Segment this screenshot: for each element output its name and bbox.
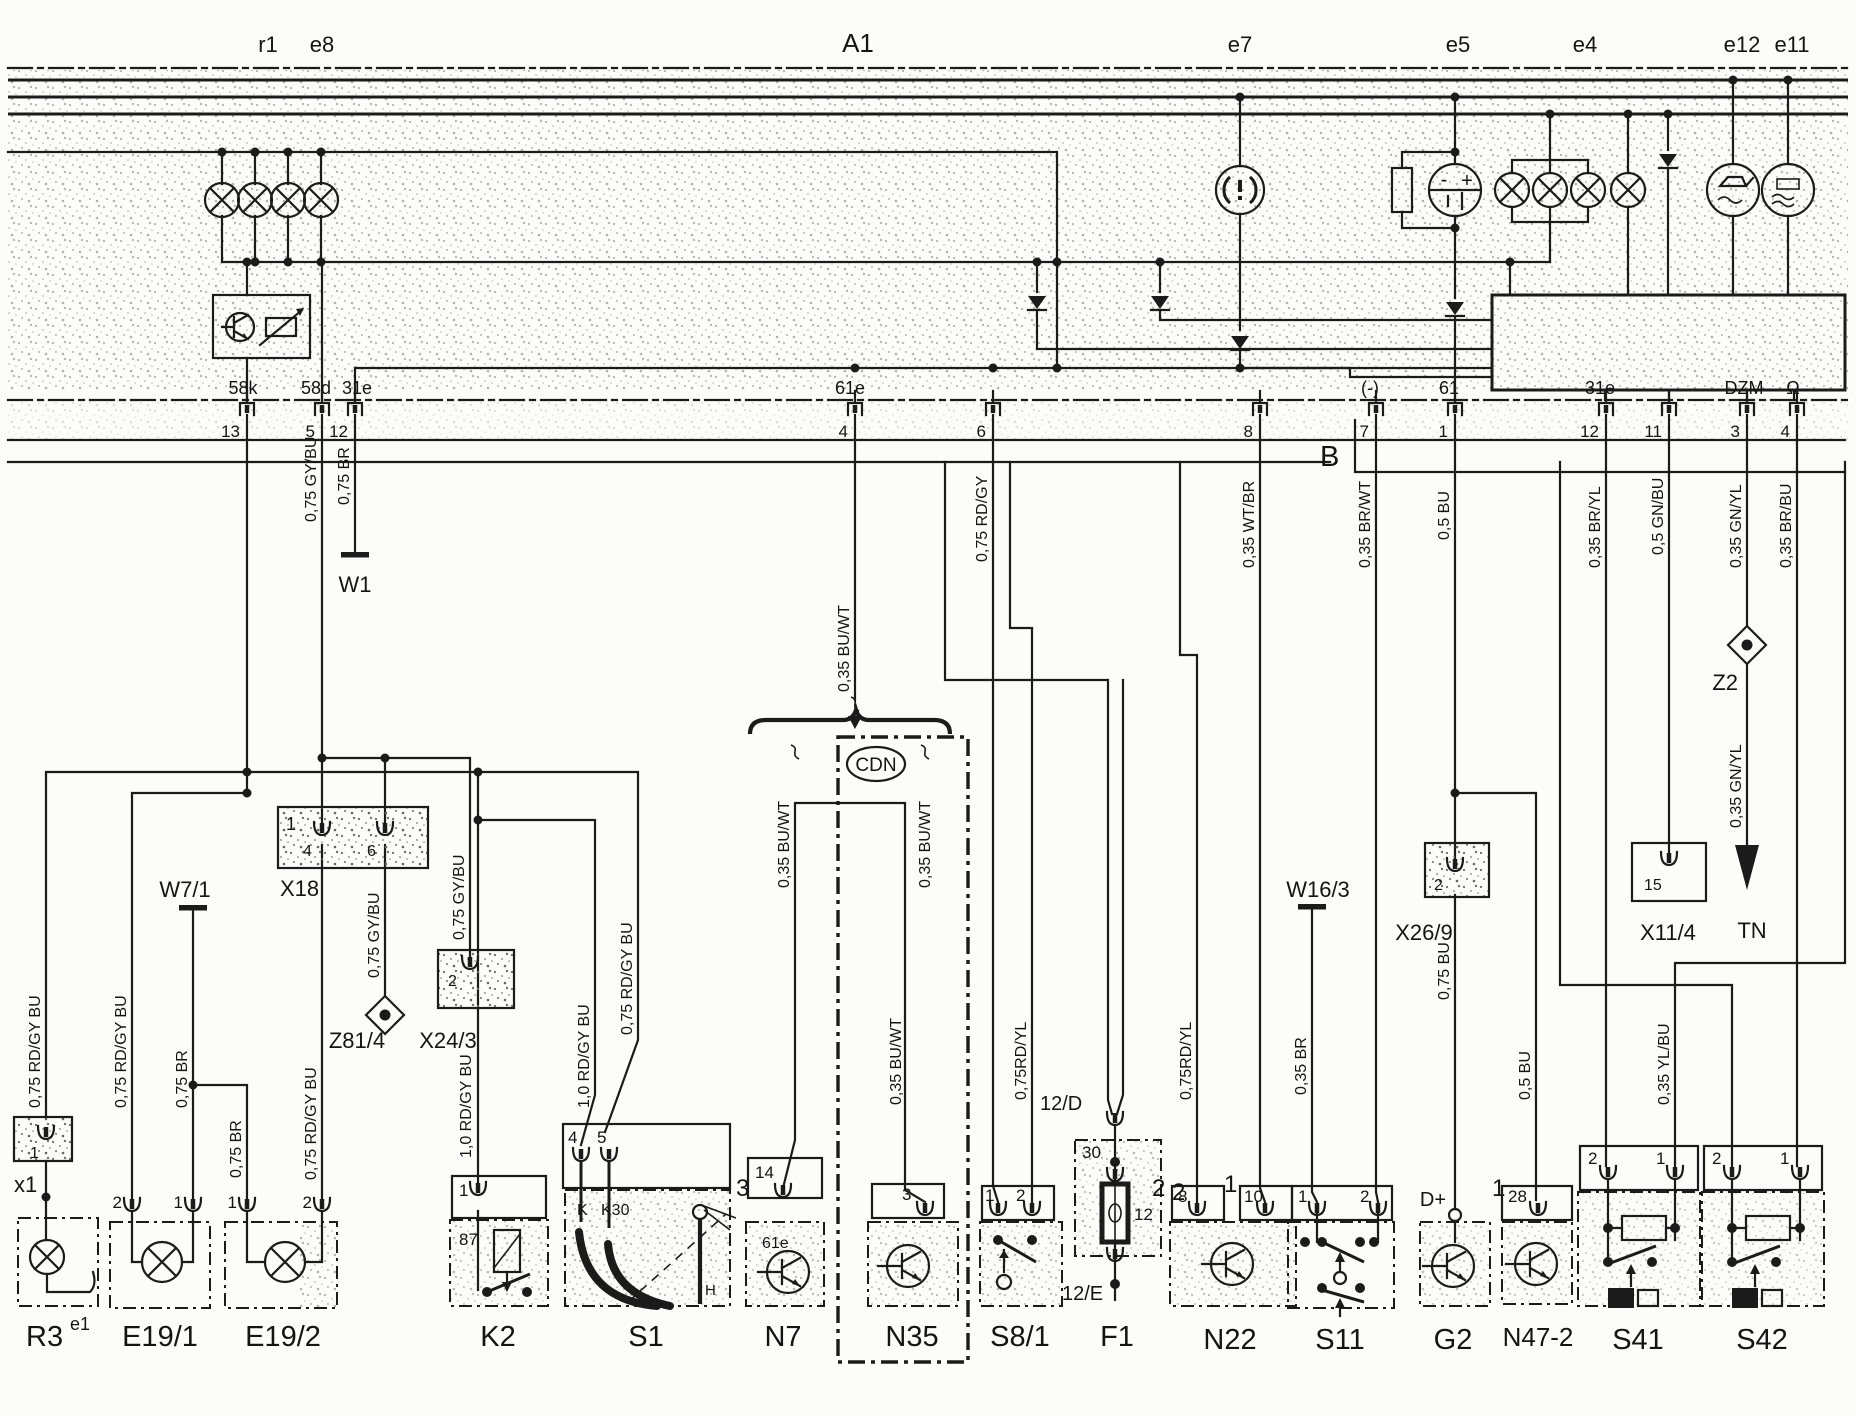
x1-pin1: 1 <box>30 1145 39 1162</box>
twisted-pair-brace <box>750 710 950 734</box>
wire-label: 0,75 GY/BU <box>303 437 320 522</box>
pin-6: 6 <box>977 422 986 441</box>
pin-1: 1 <box>1439 422 1448 441</box>
component-n7: 14 61e N7 <box>746 1158 824 1353</box>
terminal-31e-left: 31e <box>342 378 372 398</box>
n7-pin14: 14 <box>755 1163 774 1182</box>
s1-h-mark: H <box>705 1282 716 1299</box>
s11-label: S11 <box>1315 1324 1364 1356</box>
component-k2: 1 87 K2 <box>450 1176 548 1353</box>
x1-label: x1 <box>14 1172 37 1197</box>
wire-f1-feed <box>945 462 1123 1114</box>
n22-pin10: 10 <box>1244 1187 1263 1206</box>
terminal-61e: 61e <box>835 378 865 398</box>
rail-label-e7: e7 <box>1228 32 1252 57</box>
g2-outer1: 1 <box>1492 1175 1505 1202</box>
rail-label-a1: A1 <box>842 28 874 58</box>
wire-s41-pin1 <box>1675 462 1845 1166</box>
wire-label: 0,35 BR/WT <box>1357 481 1374 568</box>
wire-label: 0,35 WT/BR <box>1241 481 1258 568</box>
pin-13: 13 <box>221 422 240 441</box>
n22-label: N22 <box>1203 1324 1256 1356</box>
k2-pin1: 1 <box>459 1181 468 1200</box>
connector-x114: 15 X11/4 <box>1632 843 1706 945</box>
wire-label: 0,75 BR <box>228 1120 245 1178</box>
svg-text:-: - <box>1441 169 1448 191</box>
component-n35: 3 N35 <box>868 1184 958 1353</box>
tn-label: TN <box>1737 918 1766 943</box>
wire-label: 0,35 BR/BU <box>1778 484 1795 568</box>
rail-label-e8: e8 <box>310 32 334 57</box>
s11-pin2: 2 <box>1360 1187 1369 1206</box>
component-s81: 1 2 S8/1 <box>980 1186 1062 1353</box>
component-s41: 2 1 S41 <box>1578 1146 1700 1356</box>
component-s42: 2 1 S42 <box>1702 1146 1824 1356</box>
wire-label: 0,5 BU <box>1436 491 1453 540</box>
ground-w71-label: W7/1 <box>159 877 210 902</box>
connector-x243: 2 X24/3 <box>419 950 514 1053</box>
splice-z2-label: Z2 <box>1712 670 1738 695</box>
n22-outer2: 2 <box>1152 1175 1165 1202</box>
wire-label: 1,0 RD/GY BU <box>576 1004 593 1108</box>
wire-wtbr <box>1260 415 1265 1202</box>
component-g2: D+ 1 G2 <box>1420 1175 1505 1356</box>
ground-w163-label: W16/3 <box>1286 877 1350 902</box>
terminal-58d: 58d <box>301 378 331 398</box>
terminal-dzm: DZM <box>1725 378 1764 398</box>
ground-w1-label: W1 <box>339 572 372 597</box>
pin-3: 3 <box>1731 422 1740 441</box>
wire-cdn-pair <box>783 803 925 1202</box>
wire-label: 0,35 BR/YL <box>1587 486 1604 568</box>
wire-label: 0,35 BU/WT <box>776 801 793 888</box>
x18-pin6: 6 <box>367 843 376 860</box>
f1-pin30: 30 <box>1082 1143 1101 1162</box>
s41-pin1: 1 <box>1656 1149 1665 1168</box>
wire-label: 0,75RD/YL <box>1178 1022 1195 1100</box>
k2-label: K2 <box>480 1321 515 1353</box>
wire-label: 0,75 RD/GY BU <box>113 995 130 1108</box>
wire-label: 0,75 GY/BU <box>366 893 383 978</box>
n7-terminal-61e: 61e <box>762 1235 789 1252</box>
pin-4-left: 4 <box>839 422 848 441</box>
g2-dplus: D+ <box>1420 1189 1446 1211</box>
s81-label: S8/1 <box>990 1321 1050 1353</box>
connector-x269: 2 X26/9 <box>1395 843 1489 945</box>
wire-w163 <box>1312 909 1317 1202</box>
wire-rdgy <box>993 415 998 1202</box>
rail-label-e12: e12 <box>1724 32 1761 57</box>
wire-label: 0,75 BU <box>1436 942 1453 1000</box>
pin-8: 8 <box>1244 422 1253 441</box>
wire-label: 0,75RD/YL <box>1013 1022 1030 1100</box>
wire-label: 0,5 BU <box>1517 1051 1534 1100</box>
wire-label: 0,75 RD/GY BU <box>303 1067 320 1180</box>
rail-label-e4: e4 <box>1573 32 1597 57</box>
wiring-diagram-page: r1 e8 A1 e7 e5 e4 e12 e11 <box>0 0 1856 1416</box>
pin-12-right: 12 <box>1580 422 1599 441</box>
f1-12d-label: 12/D <box>1040 1093 1082 1115</box>
wire-label: 0,35 BU/WT <box>888 1018 905 1105</box>
z814-label: Z81/4 <box>329 1028 385 1053</box>
wire-label: 0,5 GN/BU <box>1650 478 1667 555</box>
f1-12e-label: 12/E <box>1062 1283 1103 1305</box>
s41-pin2: 2 <box>1588 1149 1597 1168</box>
pin-7: 7 <box>1360 422 1369 441</box>
wire-label: 0,35 GN/YL <box>1728 484 1745 568</box>
top-rail-band: r1 e8 A1 e7 e5 e4 e12 e11 <box>8 28 1848 442</box>
x243-label: X24/3 <box>419 1028 477 1053</box>
wire-label: 0,35 BU/WT <box>917 801 934 888</box>
component-n472: 28 N47-2 <box>1502 1186 1573 1352</box>
component-e191: 2 1 E19/1 <box>110 1193 210 1353</box>
e192-pin1: 1 <box>228 1193 237 1212</box>
r3-label: R3 <box>26 1321 63 1353</box>
component-r3: 1 x1 R3 e1 <box>14 1117 98 1353</box>
connector-x18: 1 4 6 X18 <box>278 807 428 901</box>
s42-pin1: 1 <box>1780 1149 1789 1168</box>
wire-label: 1,0 RD/GY BU <box>458 1054 475 1158</box>
svg-text:+: + <box>1461 170 1473 192</box>
wire-label: 0,75 BR <box>174 1050 191 1108</box>
wire-label: 0,75 RD/GY BU <box>27 995 44 1108</box>
halftone-band-2 <box>8 400 1848 442</box>
g2-label: G2 <box>1434 1324 1473 1356</box>
n22-pin8: 8 <box>1178 1187 1187 1206</box>
s11-pin1: 1 <box>1298 1187 1307 1206</box>
f1-label: F1 <box>1100 1321 1134 1353</box>
wiring-diagram: r1 e8 A1 e7 e5 e4 e12 e11 <box>0 0 1856 1416</box>
component-e192: 1 2 E19/2 <box>225 1193 337 1353</box>
x269-label: X26/9 <box>1395 920 1453 945</box>
x114-pin15: 15 <box>1644 877 1662 894</box>
s42-pin2: 2 <box>1712 1149 1721 1168</box>
wire-label: 0,35 BR <box>1293 1037 1310 1095</box>
f1-pin12: 12 <box>1134 1205 1153 1224</box>
component-s1: 4 5 3 K K30 H S1 <box>563 1124 749 1353</box>
n35-pin3: 3 <box>902 1185 911 1204</box>
r3-superscript: e1 <box>70 1314 90 1334</box>
rail-label-e5: e5 <box>1446 32 1470 57</box>
halftone-band <box>8 70 1848 392</box>
n7-label: N7 <box>764 1321 801 1353</box>
e192-pin2: 2 <box>303 1193 312 1212</box>
terminal-58k: 58k <box>228 378 258 398</box>
e191-pin2: 2 <box>113 1193 122 1212</box>
s1-pin4: 4 <box>568 1128 577 1147</box>
e191-label: E19/1 <box>122 1321 198 1353</box>
s42-label: S42 <box>1736 1324 1788 1356</box>
x18-pin1: 1 <box>286 814 296 834</box>
s1-terminal-k30: K30 <box>601 1202 630 1219</box>
terminal-31e-right: 31e <box>1585 378 1615 398</box>
x18-pin4: 4 <box>303 843 312 860</box>
n472-label: N47-2 <box>1503 1322 1574 1352</box>
n472-pin28: 28 <box>1508 1187 1527 1206</box>
n35-label: N35 <box>885 1321 938 1353</box>
wire-label: 0,35 BU/WT <box>836 605 853 692</box>
pin-4-right: 4 <box>1781 422 1790 441</box>
wire-label: 0,75 GY/BU <box>451 855 468 940</box>
x114-label: X11/4 <box>1640 920 1696 945</box>
pin-12-left: 12 <box>329 422 348 441</box>
cdn-label: CDN <box>855 755 896 776</box>
wire-label: 0,75 RD/GY BU <box>619 922 636 1035</box>
wire-brwt <box>1376 415 1378 1202</box>
wire-label: 0,35 YL/BU <box>1656 1023 1673 1105</box>
x18-label: X18 <box>280 876 319 901</box>
s1-label: S1 <box>628 1321 663 1353</box>
connector-b-label: B <box>1320 441 1339 473</box>
x243-pin2: 2 <box>448 973 457 990</box>
e192-label: E19/2 <box>245 1321 321 1353</box>
e191-pin1: 1 <box>174 1193 183 1212</box>
k2-pin87: 87 <box>459 1230 478 1249</box>
s1-pin5: 5 <box>597 1128 606 1147</box>
component-s11: 1 2 S11 <box>1288 1186 1394 1356</box>
rail-label-e11: e11 <box>1774 32 1809 57</box>
pin-11: 11 <box>1644 422 1662 441</box>
wire-s42-pin2 <box>1560 462 1732 1166</box>
wire-label: 0,75 BR <box>336 447 353 505</box>
rail-label-r1: r1 <box>258 32 278 57</box>
x269-pin2: 2 <box>1434 877 1443 894</box>
wire-label: 0,75 RD/GY <box>974 475 991 562</box>
wire-label: 0,35 GN/YL <box>1728 744 1745 828</box>
s41-label: S41 <box>1612 1324 1664 1356</box>
tn-arrow <box>1735 845 1759 890</box>
n22-outer1: 1 <box>1224 1171 1237 1198</box>
